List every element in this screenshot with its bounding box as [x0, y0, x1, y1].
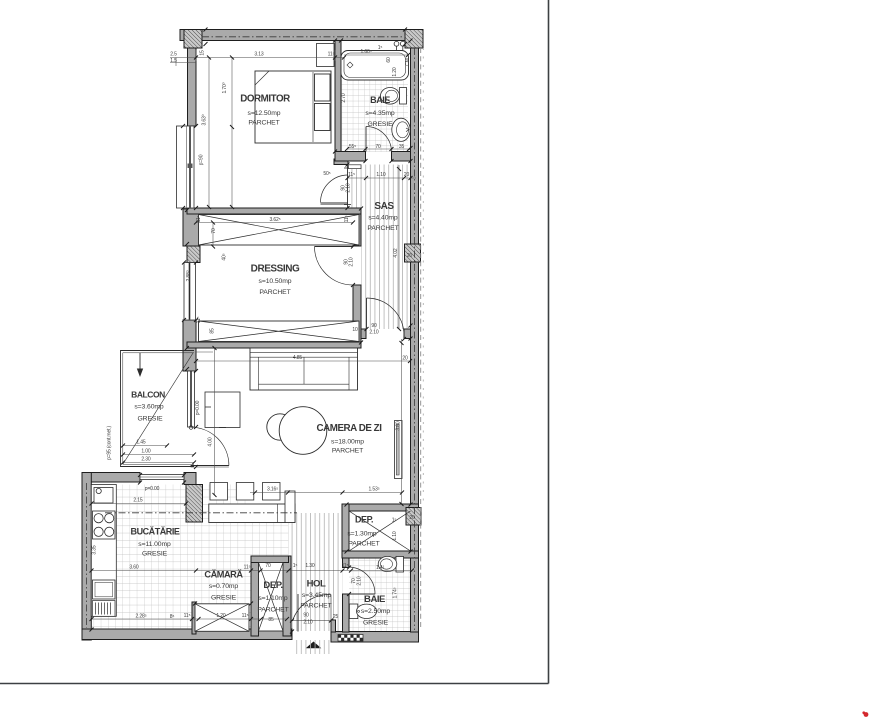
- svg-text:HOL: HOL: [307, 579, 326, 590]
- svg-text:s=0.70mp: s=0.70mp: [209, 583, 239, 590]
- svg-text:60: 60: [386, 57, 392, 63]
- svg-text:1.4²: 1.4²: [376, 565, 385, 571]
- svg-text:s=1.10mp: s=1.10mp: [258, 595, 288, 602]
- svg-text:1⁵: 1⁵: [378, 45, 383, 51]
- svg-text:s=10.50mp: s=10.50mp: [259, 278, 292, 285]
- svg-text:2.5: 2.5: [170, 52, 177, 58]
- svg-text:3.13: 3.13: [254, 52, 264, 58]
- svg-text:1.20: 1.20: [216, 613, 226, 619]
- svg-text:1.30: 1.30: [305, 563, 315, 569]
- svg-text:CĂMARĂ: CĂMARĂ: [204, 570, 243, 580]
- svg-text:2.10: 2.10: [346, 183, 352, 193]
- svg-text:1.60⁵: 1.60⁵: [360, 49, 371, 55]
- svg-text:GRESIE: GRESIE: [211, 595, 237, 602]
- svg-text:1.5: 1.5: [170, 58, 177, 64]
- svg-text:20: 20: [404, 172, 410, 178]
- svg-text:GRESIE: GRESIE: [137, 416, 163, 423]
- svg-text:DEP.: DEP.: [355, 515, 373, 525]
- svg-text:s=18.00mp: s=18.00mp: [331, 439, 364, 446]
- svg-text:2.15: 2.15: [133, 498, 143, 504]
- svg-text:BAIE: BAIE: [364, 594, 385, 605]
- svg-text:s=4.35mp: s=4.35mp: [365, 110, 395, 117]
- svg-text:1.53⁵: 1.53⁵: [368, 487, 379, 493]
- svg-text:CAMERA DE ZI: CAMERA DE ZI: [317, 423, 383, 434]
- svg-text:DORMITOR: DORMITOR: [240, 94, 290, 105]
- svg-text:1.00: 1.00: [141, 449, 151, 455]
- svg-text:p=0.00: p=0.00: [195, 400, 201, 415]
- svg-text:s=11.00mp: s=11.00mp: [138, 541, 171, 548]
- svg-text:s=1.30mp: s=1.30mp: [347, 531, 377, 538]
- svg-text:8⁵: 8⁵: [170, 614, 175, 620]
- svg-text:DEP.: DEP.: [263, 580, 282, 591]
- svg-text:PARCHET: PARCHET: [248, 120, 279, 127]
- svg-text:90: 90: [371, 323, 377, 329]
- svg-text:BUCĂTĂRIE: BUCĂTĂRIE: [131, 527, 180, 537]
- svg-text:3.16⁵: 3.16⁵: [267, 487, 278, 493]
- svg-text:1.20: 1.20: [392, 67, 398, 77]
- svg-text:55⁵: 55⁵: [349, 144, 356, 150]
- svg-text:2.10: 2.10: [357, 576, 363, 586]
- svg-text:50⁵: 50⁵: [323, 171, 330, 177]
- svg-text:25: 25: [333, 614, 339, 620]
- svg-text:p=95 (cont.met.): p=95 (cont.met.): [107, 425, 113, 460]
- svg-text:PARCHET: PARCHET: [259, 289, 290, 296]
- svg-text:4.00: 4.00: [208, 437, 214, 447]
- svg-text:20: 20: [407, 253, 413, 259]
- svg-text:1.10: 1.10: [392, 531, 398, 541]
- svg-text:PARCHET: PARCHET: [348, 541, 379, 548]
- svg-text:20: 20: [409, 515, 415, 521]
- svg-text:GRESIE: GRESIE: [142, 551, 168, 558]
- svg-text:2.88⁰: 2.88⁰: [186, 270, 192, 281]
- svg-text:4.02: 4.02: [393, 248, 399, 258]
- svg-text:85: 85: [210, 328, 216, 334]
- svg-text:15: 15: [200, 50, 206, 56]
- svg-text:GRESIE: GRESIE: [367, 121, 393, 128]
- svg-text:s=3.45mp: s=3.45mp: [302, 592, 332, 599]
- svg-text:p=0.00: p=0.00: [145, 486, 160, 492]
- svg-text:PARCHET: PARCHET: [332, 448, 363, 455]
- svg-text:PARCHET: PARCHET: [367, 225, 398, 232]
- svg-text:70: 70: [211, 228, 217, 234]
- svg-text:11⁵: 11⁵: [184, 613, 191, 619]
- svg-text:2.30: 2.30: [141, 457, 151, 463]
- svg-text:35: 35: [399, 144, 405, 150]
- svg-text:11⁵: 11⁵: [196, 317, 202, 324]
- svg-text:s=2.50mp: s=2.50mp: [361, 608, 391, 615]
- svg-text:3.35: 3.35: [92, 545, 98, 555]
- svg-text:90: 90: [303, 613, 309, 619]
- svg-text:1.10: 1.10: [376, 172, 386, 178]
- svg-text:2.70: 2.70: [341, 93, 347, 103]
- svg-text:11⁵: 11⁵: [244, 565, 251, 571]
- svg-text:BAIE: BAIE: [370, 95, 390, 105]
- svg-text:11⁵: 11⁵: [328, 52, 335, 58]
- svg-text:3.60: 3.60: [129, 565, 139, 571]
- svg-text:s=12.50mp: s=12.50mp: [248, 110, 281, 117]
- svg-text:70: 70: [265, 563, 271, 569]
- svg-text:3.60: 3.60: [396, 421, 402, 431]
- svg-text:PARCHET: PARCHET: [257, 607, 288, 614]
- svg-text:CM: CM: [405, 58, 411, 65]
- svg-text:BALCON: BALCON: [131, 390, 165, 400]
- svg-text:2.10: 2.10: [369, 330, 379, 336]
- svg-text:2.10: 2.10: [349, 257, 355, 267]
- svg-text:3.63⁰: 3.63⁰: [202, 114, 208, 125]
- svg-text:2.28⁵: 2.28⁵: [135, 614, 146, 620]
- svg-text:11⁵: 11⁵: [344, 216, 350, 223]
- svg-text:1.70⁰: 1.70⁰: [222, 82, 228, 93]
- svg-text:11⁵: 11⁵: [196, 216, 202, 223]
- svg-text:PARCHET: PARCHET: [300, 603, 331, 610]
- svg-text:1.74⁵: 1.74⁵: [393, 587, 399, 598]
- svg-text:1.45: 1.45: [136, 440, 146, 446]
- svg-text:40⁵: 40⁵: [222, 253, 228, 260]
- svg-text:11⁵: 11⁵: [342, 563, 349, 569]
- svg-text:70: 70: [375, 144, 381, 150]
- svg-text:DRESSING: DRESSING: [251, 264, 300, 275]
- svg-text:3.62⁵: 3.62⁵: [269, 217, 280, 223]
- svg-text:s=3.60mp: s=3.60mp: [134, 404, 164, 411]
- svg-text:p=90: p=90: [199, 154, 205, 165]
- svg-text:85: 85: [268, 617, 274, 623]
- svg-text:GRESIE: GRESIE: [363, 620, 389, 627]
- svg-text:11⁵: 11⁵: [242, 613, 249, 619]
- svg-text:10: 10: [352, 327, 358, 333]
- svg-text:1⁵: 1⁵: [293, 563, 298, 569]
- svg-text:1⁵: 1⁵: [392, 518, 397, 524]
- svg-text:11⁵: 11⁵: [348, 172, 355, 178]
- svg-text:4.85: 4.85: [293, 355, 303, 361]
- svg-text:20: 20: [402, 356, 408, 362]
- svg-text:s=4.40mp: s=4.40mp: [368, 215, 398, 222]
- svg-text:2.10: 2.10: [303, 620, 313, 626]
- svg-text:SAS: SAS: [374, 201, 394, 212]
